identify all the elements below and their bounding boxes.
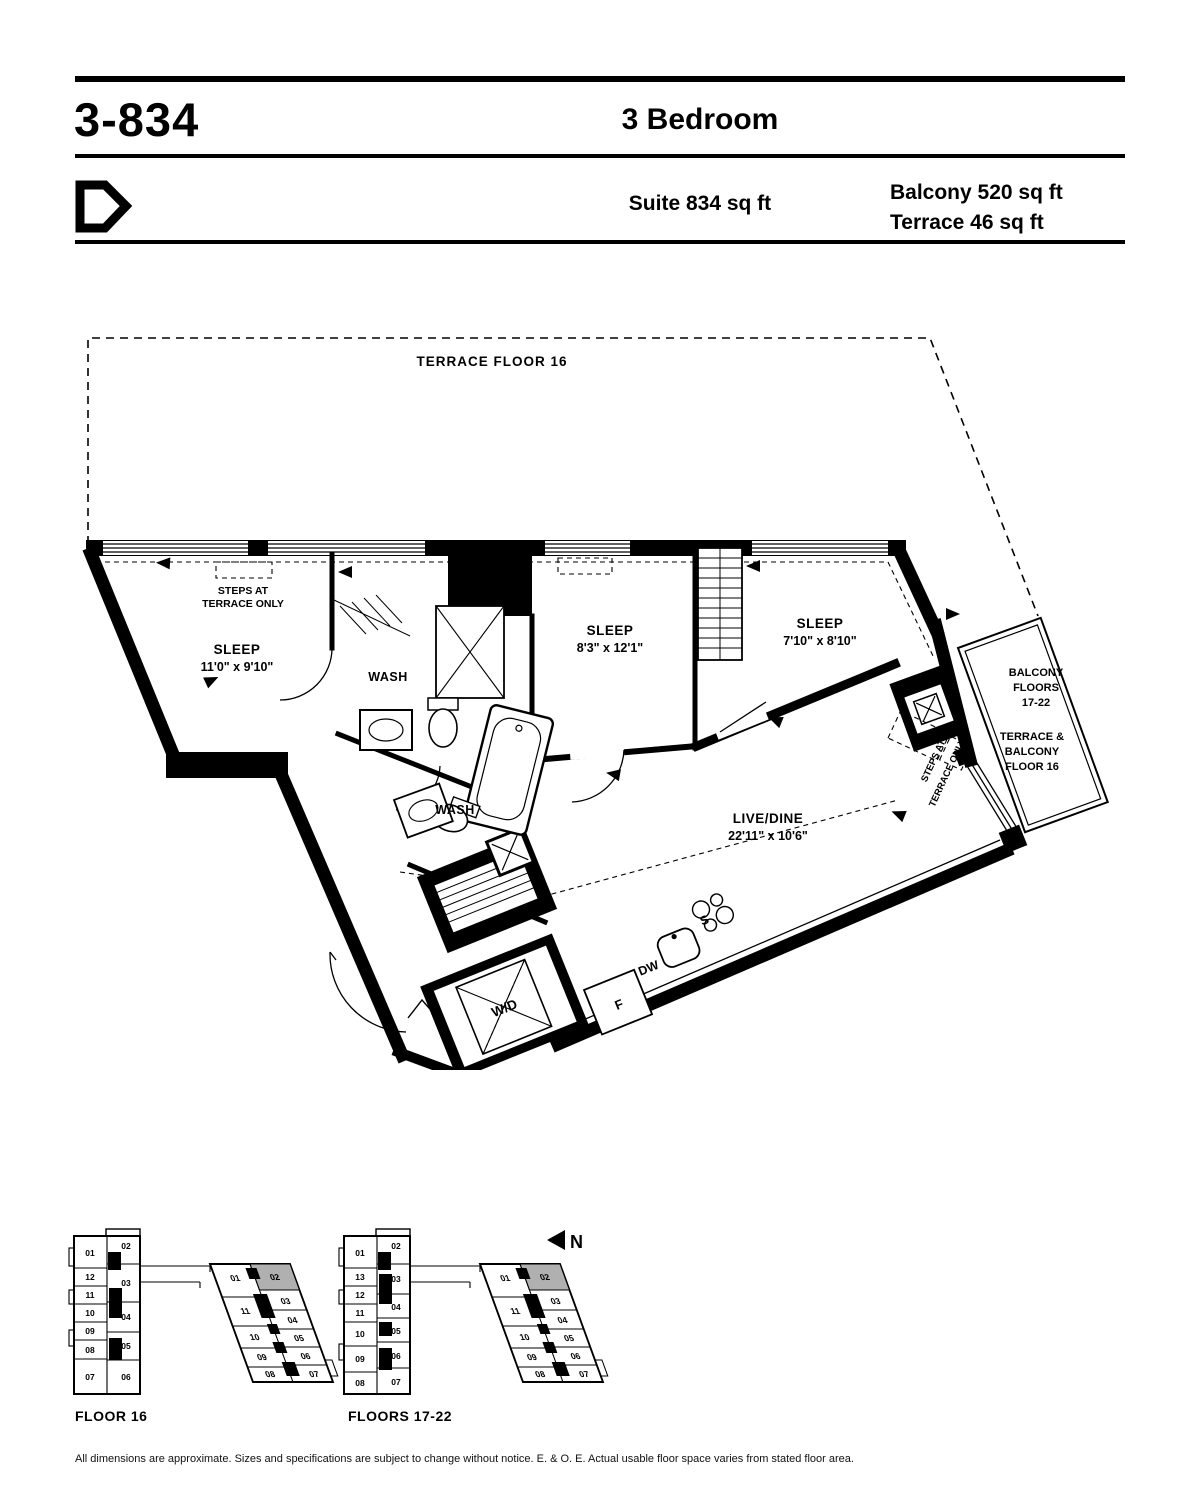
svg-text:02: 02 xyxy=(121,1241,131,1251)
svg-text:06: 06 xyxy=(391,1351,401,1361)
svg-text:FLOORS: FLOORS xyxy=(1013,682,1059,694)
svg-text:BALCONY: BALCONY xyxy=(1009,667,1064,679)
mid-rule xyxy=(75,154,1125,158)
wash1-label: WASH xyxy=(368,670,408,684)
kitchen-sink-icon xyxy=(655,926,702,970)
builder-logo xyxy=(74,180,132,234)
keyplan1722-connector xyxy=(410,1266,480,1288)
svg-text:03: 03 xyxy=(391,1274,401,1284)
sleep1-dims: 11'0" x 9'10" xyxy=(201,660,274,674)
keyplan1722-tower: 01 13 12 11 10 09 08 02 03 04 05 06 07 xyxy=(339,1229,410,1394)
svg-text:12: 12 xyxy=(355,1290,365,1300)
keyplan1722-caption: FLOORS 17-22 xyxy=(348,1408,452,1424)
keyplan1722-wing: 01 11 10 09 08 02 03 04 05 06 07 xyxy=(480,1264,610,1382)
toilet-icon xyxy=(429,709,457,747)
terrace-area: Terrace 46 sq ft xyxy=(890,208,1063,238)
sleep2-dims: 8'3" x 12'1" xyxy=(577,641,644,655)
floorplan-page: 3-834 3 Bedroom Suite 834 sq ft Balcony … xyxy=(0,0,1200,1500)
disclaimer: All dimensions are approximate. Sizes an… xyxy=(75,1453,1125,1465)
svg-text:01: 01 xyxy=(85,1248,95,1258)
balcony xyxy=(958,618,1108,832)
washer-dryer: W/D xyxy=(420,933,589,1070)
north-arrow-icon xyxy=(547,1230,565,1250)
floor-plan: TERRACE FLOOR 16 BALCONY FLOORS 17-22 TE… xyxy=(0,300,1200,1070)
terrace-outline xyxy=(88,338,1038,894)
livedine-label: LIVE/DINE xyxy=(733,811,804,826)
keyplan16-tower: 01 12 11 10 09 08 07 02 03 04 05 06 xyxy=(69,1229,140,1394)
keyplan16-caption: FLOOR 16 xyxy=(75,1408,147,1424)
svg-text:TERRACE &: TERRACE & xyxy=(1000,731,1064,743)
balcony-area: Balcony 520 sq ft xyxy=(890,178,1063,208)
top-rule xyxy=(75,76,1125,82)
svg-text:05: 05 xyxy=(391,1326,401,1336)
sleep2-label: SLEEP xyxy=(587,623,634,638)
svg-text:03: 03 xyxy=(121,1278,131,1288)
svg-text:08: 08 xyxy=(85,1345,95,1355)
svg-text:10: 10 xyxy=(355,1329,365,1339)
svg-text:08: 08 xyxy=(355,1378,365,1388)
north-arrow: N xyxy=(543,1228,613,1258)
logo-bar xyxy=(76,182,84,232)
svg-text:07: 07 xyxy=(391,1377,401,1387)
lower-rule xyxy=(75,240,1125,244)
outdoor-areas: Balcony 520 sq ft Terrace 46 sq ft xyxy=(890,178,1063,238)
svg-text:05: 05 xyxy=(121,1341,131,1351)
svg-text:02: 02 xyxy=(391,1241,401,1251)
suite-area: Suite 834 sq ft xyxy=(500,192,900,216)
svg-text:09: 09 xyxy=(85,1326,95,1336)
steps-note-line1: STEPS AT xyxy=(218,585,269,597)
svg-text:04: 04 xyxy=(391,1302,401,1312)
svg-text:04: 04 xyxy=(121,1312,131,1322)
svg-text:10: 10 xyxy=(85,1308,95,1318)
stove-sink-label: S xyxy=(698,912,711,928)
terrace-label: TERRACE FLOOR 16 xyxy=(416,354,567,369)
keyplan16-wing: 01 11 10 09 08 02 03 04 05 06 07 xyxy=(210,1264,340,1382)
svg-text:13: 13 xyxy=(355,1272,365,1282)
svg-text:09: 09 xyxy=(355,1354,365,1364)
svg-text:11: 11 xyxy=(356,1308,365,1318)
sleep3-label: SLEEP xyxy=(797,616,844,631)
svg-text:FLOOR 16: FLOOR 16 xyxy=(1005,761,1059,773)
svg-text:BALCONY: BALCONY xyxy=(1005,746,1060,758)
sleep3-dims: 7'10" x 8'10" xyxy=(783,634,856,648)
svg-text:06: 06 xyxy=(121,1372,131,1382)
svg-text:07: 07 xyxy=(85,1372,95,1382)
sleep1-label: SLEEP xyxy=(214,642,261,657)
unit-code: 3-834 xyxy=(74,92,199,147)
keyplan16-connector xyxy=(140,1266,210,1288)
logo-arrow-icon xyxy=(80,185,126,228)
svg-text:01: 01 xyxy=(355,1248,365,1258)
svg-text:12: 12 xyxy=(85,1272,95,1282)
keyplan-floor16: 01 12 11 10 09 08 07 02 03 04 05 06 01 xyxy=(60,1226,360,1408)
svg-text:17-22: 17-22 xyxy=(1022,697,1050,709)
cooktop-icon xyxy=(690,891,737,935)
livedine-dims: 22'11" x 10'6" xyxy=(728,829,808,843)
svg-text:11: 11 xyxy=(86,1290,95,1300)
unit-type: 3 Bedroom xyxy=(450,103,950,137)
north-label: N xyxy=(570,1232,583,1252)
dishwasher-label: DW xyxy=(636,958,661,979)
steps-note-line2: TERRACE ONLY xyxy=(202,598,284,610)
wash2-label: WASH xyxy=(435,803,475,817)
